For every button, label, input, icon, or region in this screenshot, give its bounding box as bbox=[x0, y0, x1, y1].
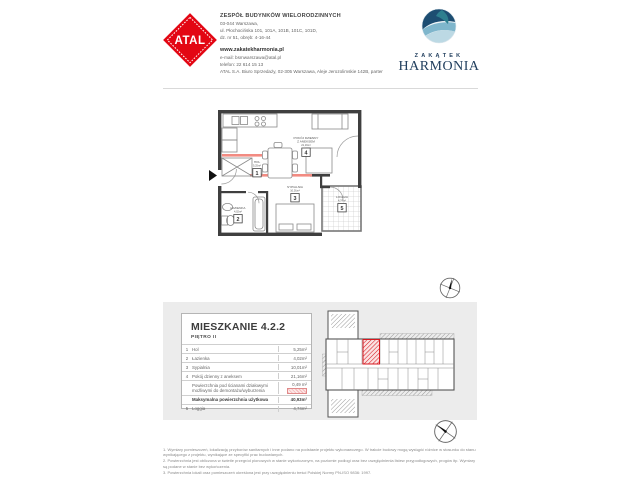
apartment-title: MIESZKANIE 4.2.2 bbox=[191, 321, 311, 333]
header-divider bbox=[163, 88, 478, 89]
dining-table bbox=[263, 143, 298, 179]
room-1-number: 1 bbox=[256, 171, 259, 177]
disclaimer-note-1: 1. Wymiary pomieszczeń, lokalizację przy… bbox=[163, 447, 479, 457]
room-1-label: HOL bbox=[254, 160, 261, 164]
bed bbox=[276, 204, 314, 232]
harmonia-logo-mark bbox=[398, 8, 480, 46]
harmonia-logo: ZAKĄTEK HARMONIA bbox=[398, 8, 480, 75]
table-row: 5 Loggia 4,74m² bbox=[182, 404, 311, 413]
table-row-demountable: Powierzchnia pod ścianami działowymi moż… bbox=[182, 380, 311, 395]
row-value: 4,74m² bbox=[278, 406, 311, 412]
wardrobe bbox=[222, 158, 252, 176]
phone-text: telefon: 22 614 15 13 bbox=[220, 62, 400, 69]
room-4-number: 4 bbox=[305, 151, 308, 157]
kitchen-counter bbox=[222, 114, 277, 152]
address-plot: dz. nr 51, obręb: 4-16-44 bbox=[220, 35, 400, 42]
room-3-area: 10,01m² bbox=[290, 189, 300, 193]
room-3-number: 3 bbox=[294, 196, 297, 202]
row-name: Pokój dzienny z aneksem bbox=[192, 374, 278, 379]
room-5-label: LOGGIA bbox=[336, 195, 349, 199]
disclaimer-notes: 1. Wymiary pomieszczeń, lokalizację przy… bbox=[163, 447, 479, 476]
room-5-number: 5 bbox=[341, 206, 344, 212]
harmonia-logo-bottom-text: HARMONIA bbox=[398, 59, 480, 75]
floor-label: PIĘTRO II bbox=[191, 335, 311, 340]
row-value: 10,01m² bbox=[278, 364, 311, 370]
sales-office-text: ATAL S.A. Biuro Sprzedaży, 02-305 Warsza… bbox=[220, 69, 400, 76]
row-name: Powierzchnia pod ścianami działowymi moż… bbox=[192, 383, 278, 393]
flyer-page: ATAL ZESPÓŁ BUDYNKÓW WIELORODZINNYCH 03-… bbox=[0, 0, 640, 480]
email-text: e-mail: bsmwarszawa@atal.pl bbox=[220, 55, 400, 62]
table-row: 3 Sypialnia 10,01m² bbox=[182, 362, 311, 371]
room-2-number: 2 bbox=[237, 217, 240, 223]
pink-hatch-swatch bbox=[287, 388, 307, 394]
row-value: 0,49 m² bbox=[278, 382, 311, 394]
disclaimer-note-2: 2. Powierzchnia jest obliczona w świetle… bbox=[163, 458, 479, 468]
compass-rose-icon bbox=[430, 416, 461, 447]
table-row: 2 Łazienka 4,02m² bbox=[182, 353, 311, 362]
row-number: 3 bbox=[182, 365, 192, 370]
website-link: www.zakatekharmonia.pl bbox=[220, 46, 400, 54]
row-name: Loggia bbox=[192, 406, 278, 411]
bathroom-fixtures bbox=[222, 197, 266, 231]
table-row: 1 Hol 5,25m² bbox=[182, 344, 311, 353]
building-key-plan bbox=[322, 308, 458, 420]
stair-hatch bbox=[331, 314, 355, 328]
room-3-label: SYPIALNIA bbox=[287, 185, 304, 189]
row-value: 21,16m² bbox=[278, 373, 311, 379]
address-street: ul. Płochocińska 101, 101A, 101B, 101C, … bbox=[220, 28, 400, 35]
row-number: 4 bbox=[182, 374, 192, 379]
atal-logo-text: ATAL bbox=[175, 35, 206, 47]
row-name: Maksymalna powierzchnia użytkowa bbox=[192, 397, 278, 402]
row-number: 5 bbox=[182, 406, 192, 411]
row-value: 40,93m² bbox=[278, 397, 311, 403]
room-2-area: 4,02m² bbox=[234, 210, 242, 214]
project-name: ZESPÓŁ BUDYNKÓW WIELORODZINNYCH bbox=[220, 12, 400, 20]
apartment-floor-plan: HOL 5,25m² 1 ŁAZIENKA 4,02m² 2 SYPIALNIA… bbox=[208, 106, 366, 242]
table-row-total: Maksymalna powierzchnia użytkowa 40,93m² bbox=[182, 395, 311, 404]
row-number: 1 bbox=[182, 347, 192, 352]
room-1-area: 5,25m² bbox=[253, 164, 261, 168]
stair-hatch bbox=[331, 399, 355, 413]
row-value: 5,25m² bbox=[278, 346, 311, 352]
table-row: 4 Pokój dzienny z aneksem 21,16m² bbox=[182, 371, 311, 380]
developer-address-block: ZESPÓŁ BUDYNKÓW WIELORODZINNYCH 03-044 W… bbox=[220, 12, 400, 76]
entrance-arrow-icon bbox=[209, 170, 217, 181]
interior-walls bbox=[218, 174, 330, 236]
row-name: Hol bbox=[192, 347, 278, 352]
row-name: Łazienka bbox=[192, 356, 278, 361]
address-city: 03-044 Warszawa, bbox=[220, 21, 400, 28]
building-outline bbox=[326, 339, 454, 390]
row-number: 2 bbox=[182, 356, 192, 361]
room-2-label: ŁAZIENKA bbox=[231, 206, 247, 210]
compass-rose-icon bbox=[436, 274, 464, 302]
row-name: Sypialnia bbox=[192, 365, 278, 370]
row-value-text: 0,49 m² bbox=[292, 382, 307, 387]
room-5-area: 4,74m² bbox=[338, 199, 346, 203]
disclaimer-note-3: 3. Powierzchnia lokali oraz pomieszczeń … bbox=[163, 470, 479, 475]
apartment-info-table: MIESZKANIE 4.2.2 PIĘTRO II 1 Hol 5,25m² … bbox=[181, 313, 312, 409]
room-4-area: 21,16m² bbox=[301, 143, 311, 147]
highlighted-apartment-unit bbox=[363, 340, 380, 365]
row-value: 4,02m² bbox=[278, 355, 311, 361]
room-4-label-line2: Z ANEKSEM bbox=[297, 140, 315, 144]
atal-logo: ATAL bbox=[161, 11, 219, 69]
